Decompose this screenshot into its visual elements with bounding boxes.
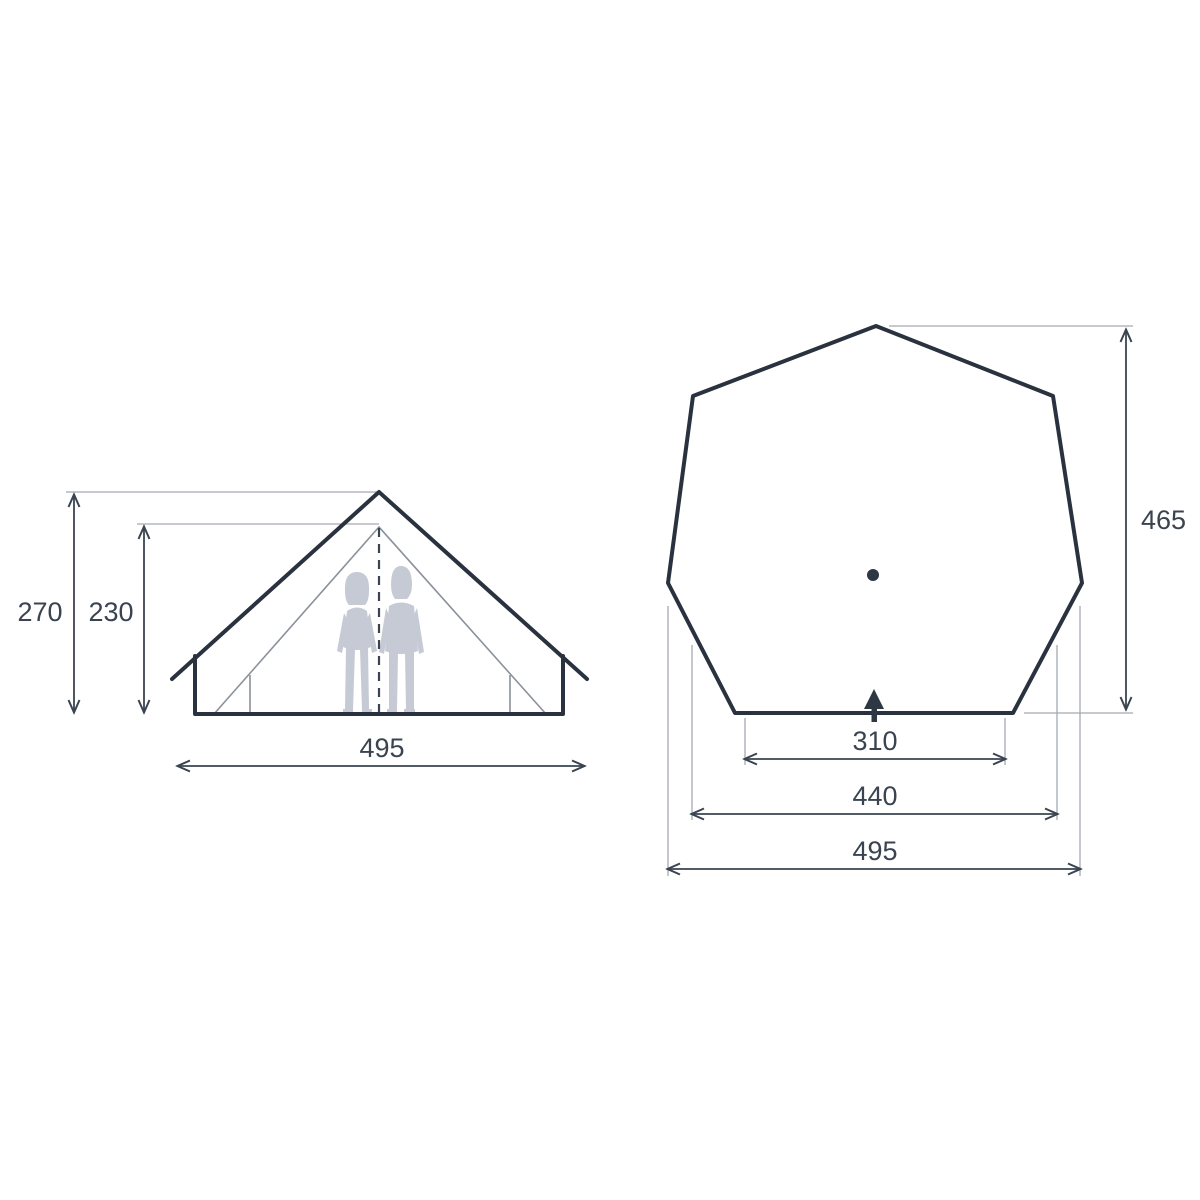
elevation-view: 270 230 bbox=[17, 492, 587, 766]
elevation-width-label: 495 bbox=[359, 733, 404, 763]
total-height-label: 270 bbox=[17, 597, 62, 627]
mid-width-label: 440 bbox=[852, 781, 897, 811]
diagram-canvas: 270 230 bbox=[0, 0, 1200, 1200]
center-pole-dot bbox=[867, 569, 879, 581]
groundsheet-outline bbox=[668, 326, 1082, 713]
plan-view: 465 310 440 495 bbox=[668, 326, 1186, 876]
woman-silhouette bbox=[337, 572, 377, 714]
man-silhouette bbox=[379, 566, 424, 714]
entrance-width-label: 310 bbox=[852, 726, 897, 756]
entrance-arrow-icon bbox=[864, 689, 884, 722]
inner-height-label: 230 bbox=[88, 597, 133, 627]
depth-label: 465 bbox=[1141, 505, 1186, 535]
plan-width-label: 495 bbox=[852, 836, 897, 866]
inner-tent-line bbox=[214, 527, 546, 714]
tent-dimension-diagram: 270 230 bbox=[0, 0, 1200, 1200]
people-silhouette bbox=[337, 566, 424, 714]
